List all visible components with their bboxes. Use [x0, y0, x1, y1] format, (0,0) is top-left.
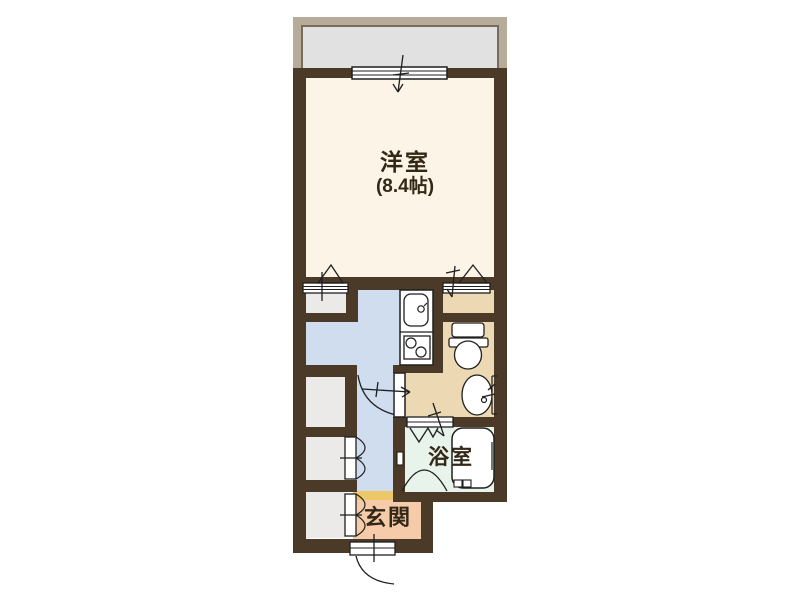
- entrance-label: 玄関: [360, 506, 416, 530]
- folding-bath-door-icon: [407, 403, 453, 442]
- western-room-size-label: (8.4帖): [348, 177, 462, 198]
- hinged-door-icon: [358, 373, 410, 417]
- western-room-label: 洋室: [355, 150, 455, 175]
- gas-stove-icon: [404, 336, 430, 359]
- floor-plan: 洋室 (8.4帖) 浴室 玄関: [0, 0, 800, 600]
- washbasin-icon: [462, 375, 497, 415]
- toilet-icon: [449, 323, 488, 369]
- folding-closet-door-icon: [443, 265, 490, 297]
- folding-closet-door-icon: [340, 437, 365, 479]
- bathroom-label: 浴室: [418, 446, 484, 469]
- entrance-door-icon: [350, 534, 395, 584]
- window-icon: [352, 55, 447, 92]
- folding-closet-door-icon: [303, 265, 348, 301]
